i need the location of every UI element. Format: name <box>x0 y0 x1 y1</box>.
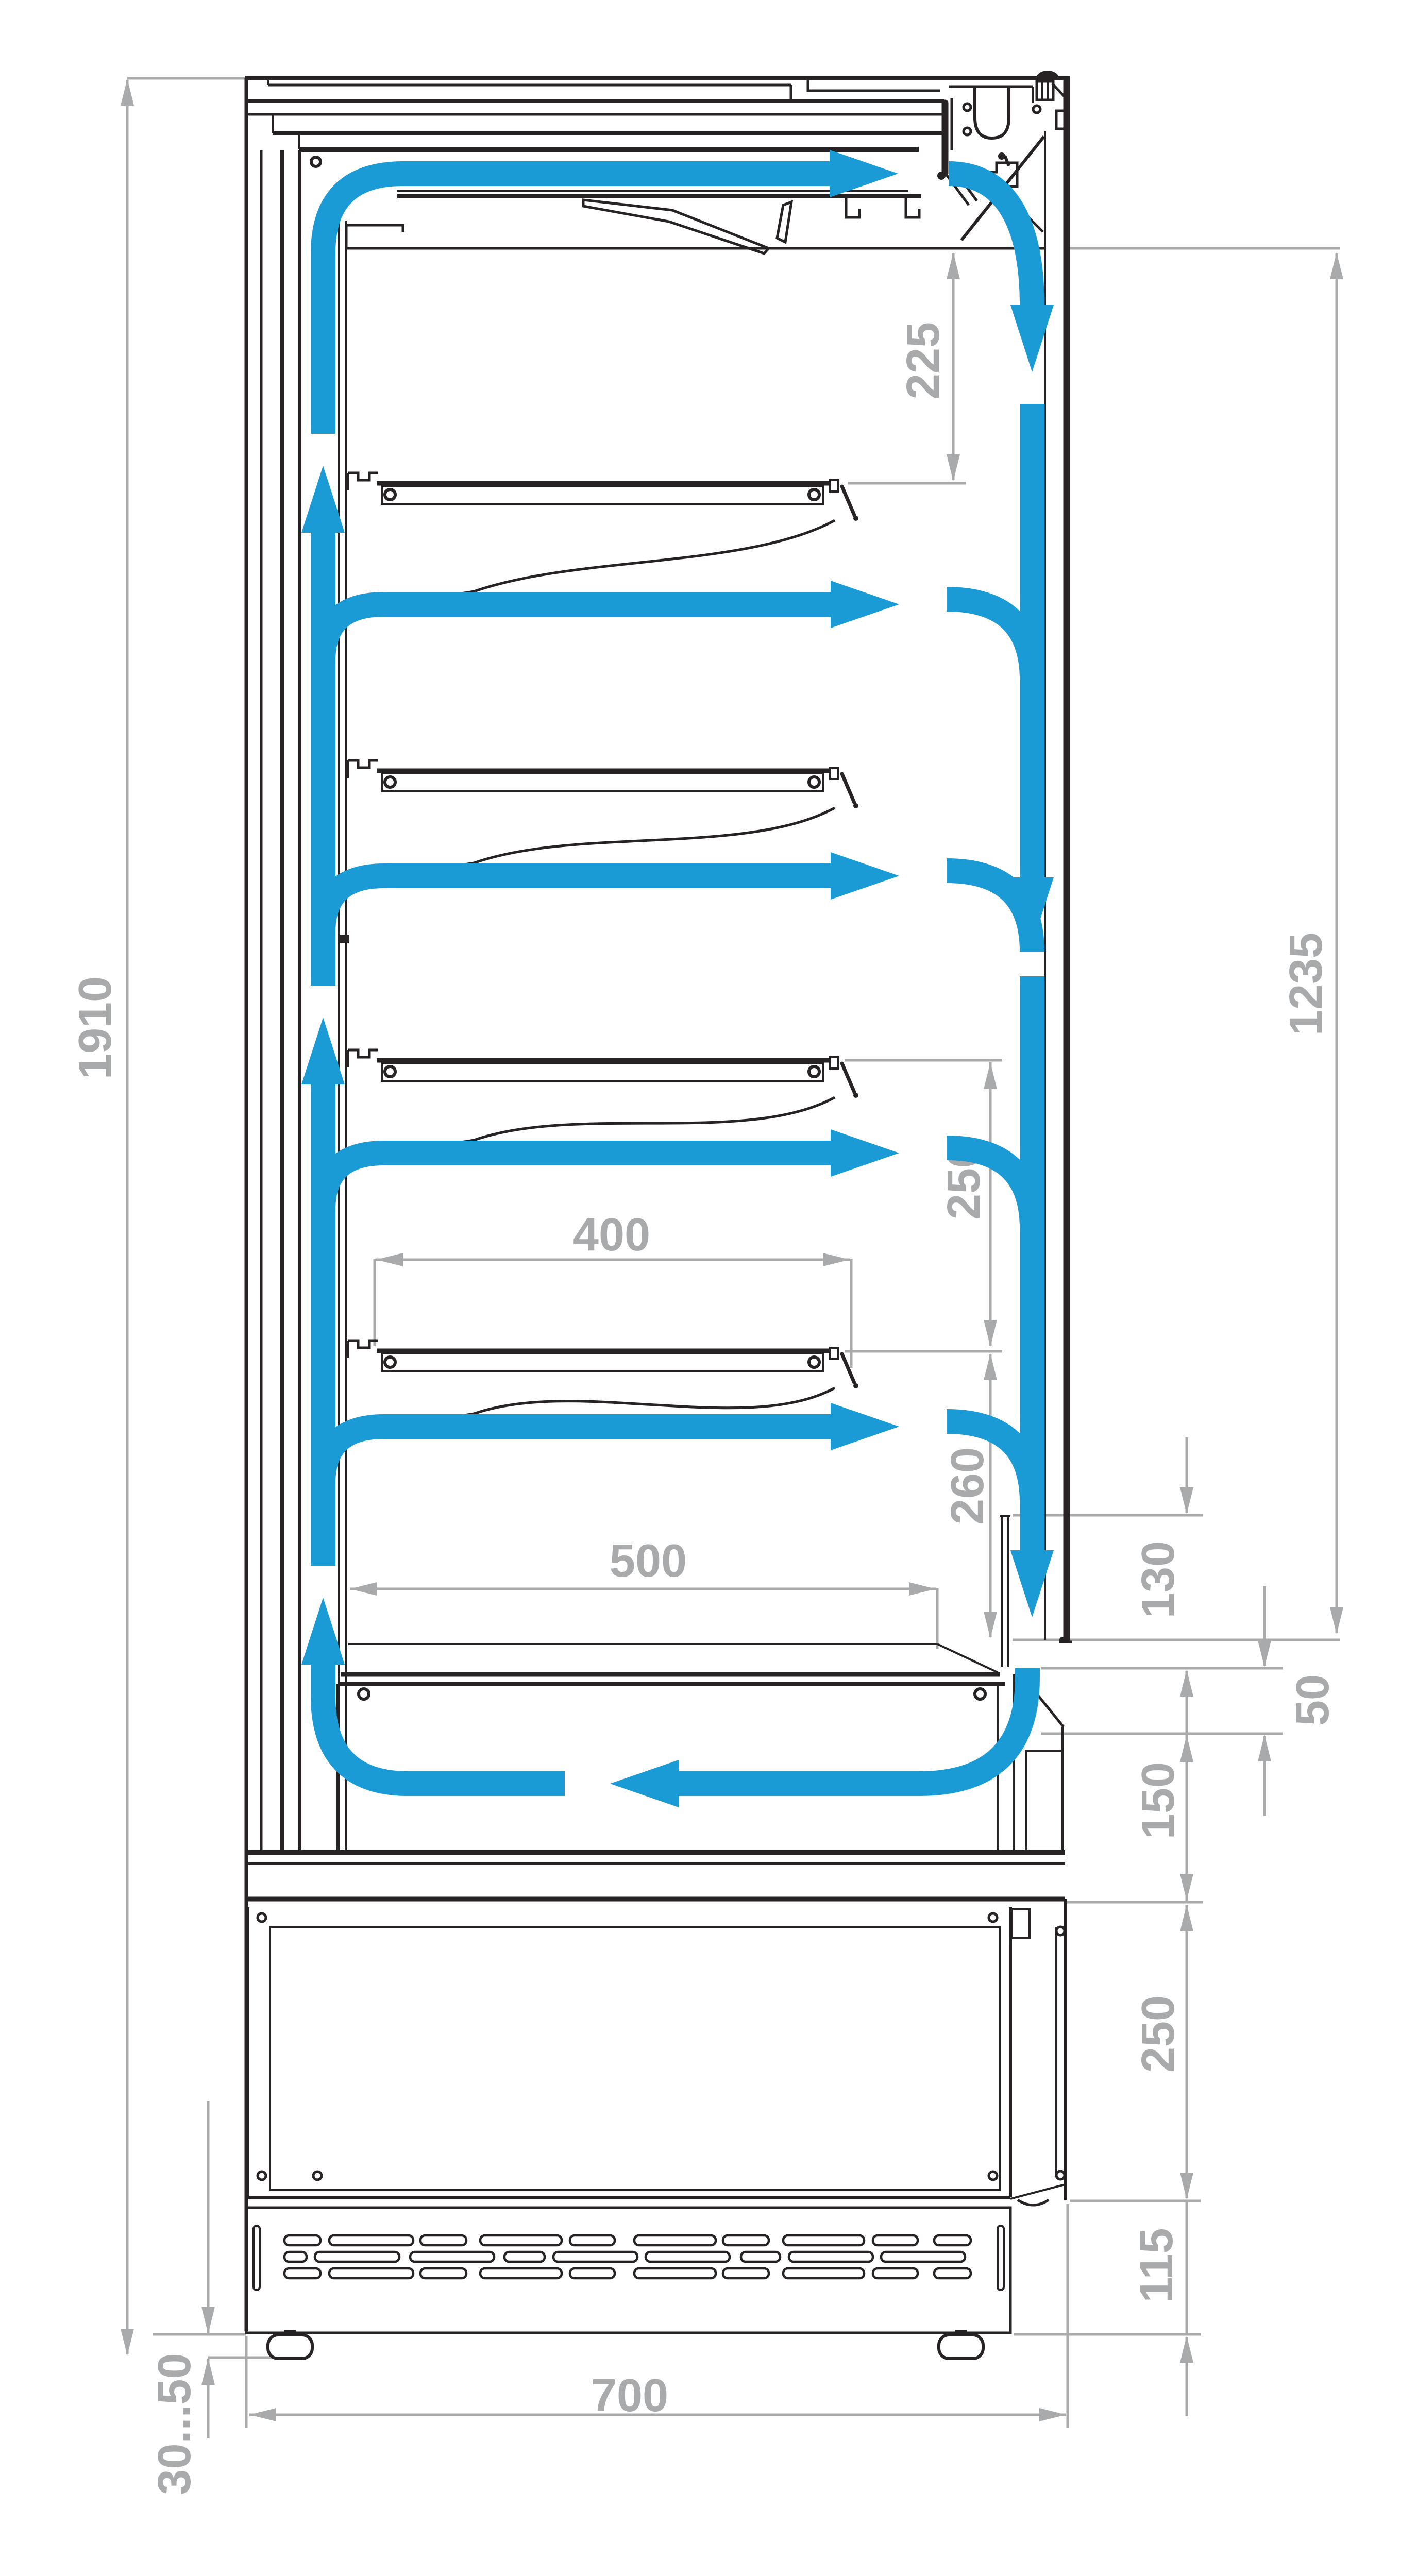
svg-text:500: 500 <box>610 1535 687 1587</box>
svg-text:115: 115 <box>1131 2228 1183 2302</box>
svg-text:30...50: 30...50 <box>149 2353 200 2495</box>
svg-text:225: 225 <box>898 322 949 399</box>
svg-text:260: 260 <box>942 1447 993 1524</box>
svg-text:700: 700 <box>591 2370 668 2421</box>
svg-text:250: 250 <box>1133 1995 1184 2073</box>
svg-text:1235: 1235 <box>1280 933 1332 1036</box>
svg-text:400: 400 <box>573 1209 650 1261</box>
svg-text:130: 130 <box>1133 1541 1184 1618</box>
svg-text:50: 50 <box>1287 1674 1339 1726</box>
svg-text:150: 150 <box>1133 1762 1184 1839</box>
svg-text:1910: 1910 <box>70 976 121 1079</box>
